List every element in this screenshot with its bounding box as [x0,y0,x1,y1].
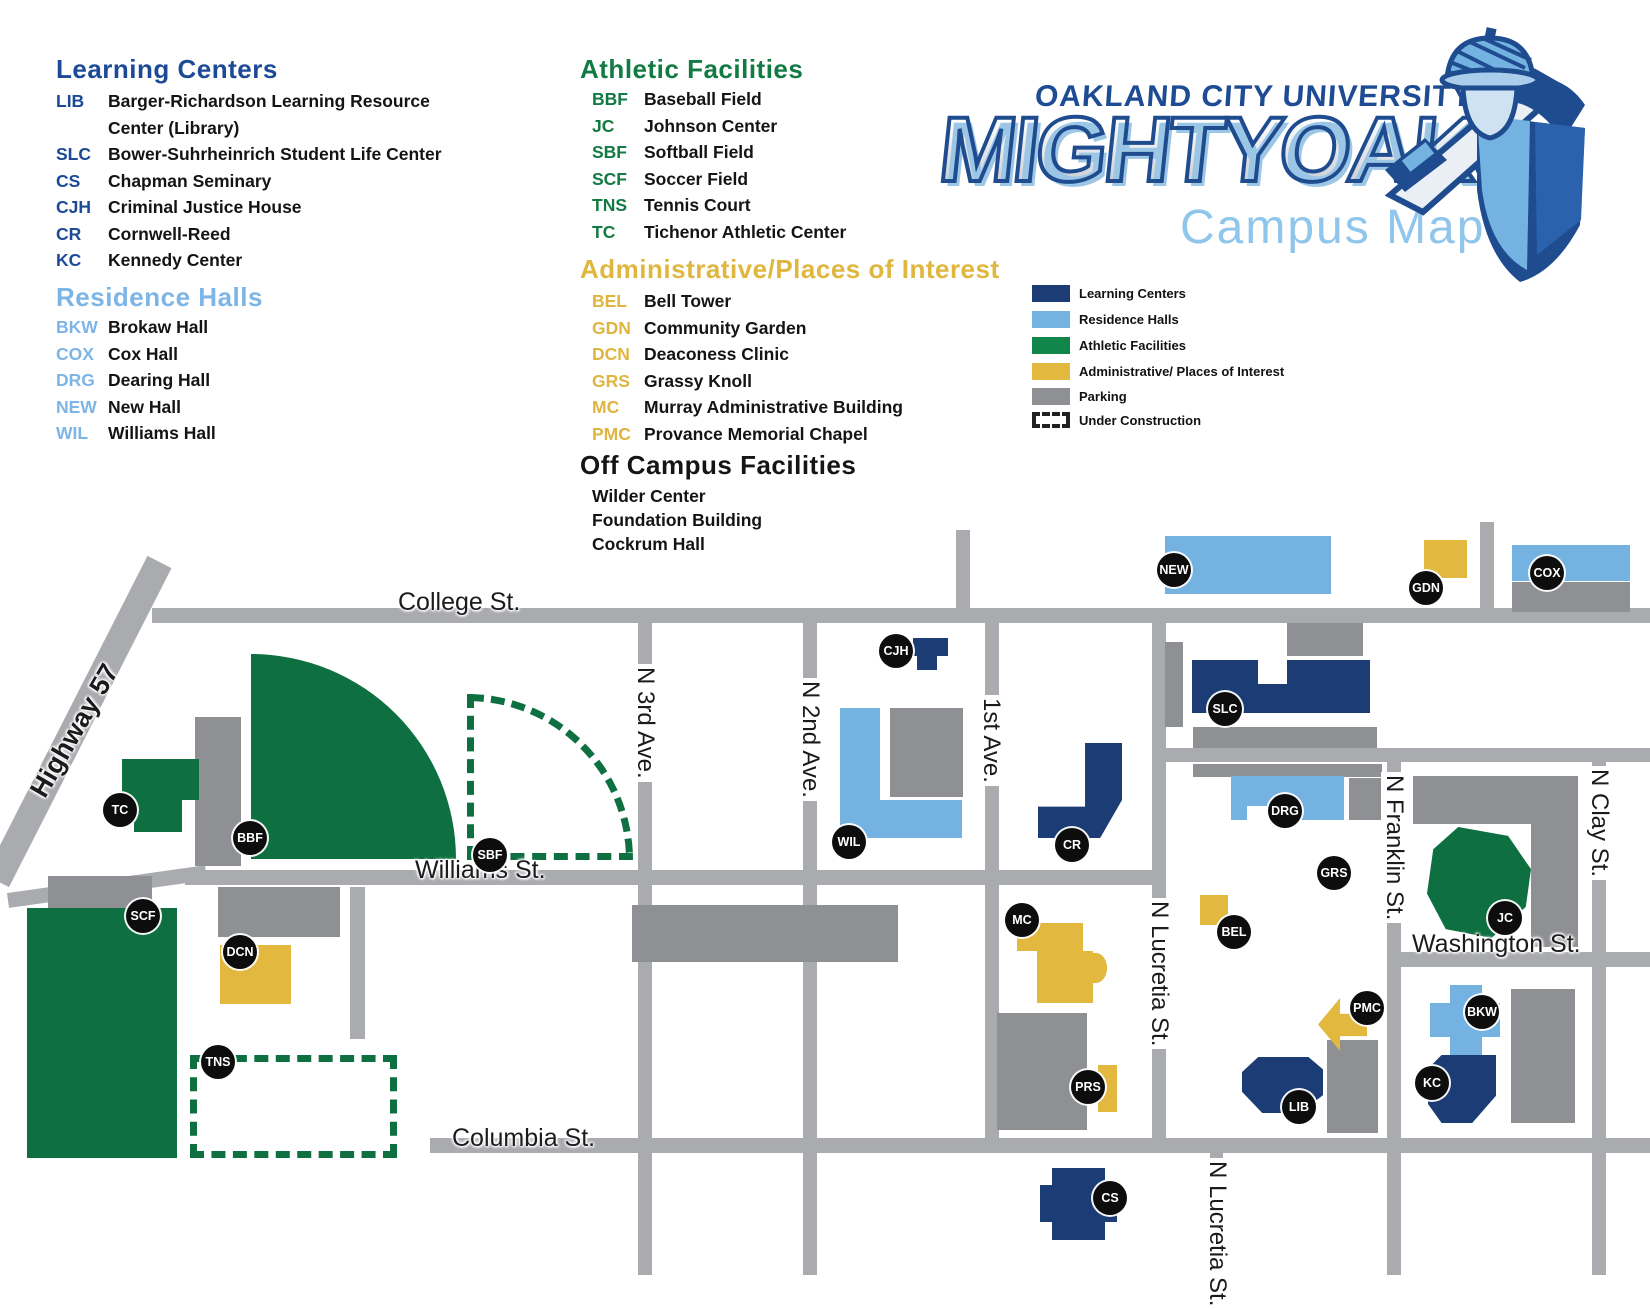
learning-swatch [1032,285,1070,302]
building-name: Tennis Court [644,192,922,219]
building-name: Bower-Suhrheinrich Student Life Center [108,141,456,168]
marker-gdn[interactable]: GDN [1409,571,1443,605]
list-item: SCFSoccer Field [592,166,922,193]
parking-lot [1327,1040,1378,1133]
marker-bbf[interactable]: BBF [233,821,267,855]
learning-centers-heading: Learning Centers [56,54,278,85]
list-item: TCTichenor Athletic Center [592,219,922,246]
list-item: TNSTennis Court [592,192,922,219]
marker-slc[interactable]: SLC [1208,692,1242,726]
street-label-n-franklin: N Franklin St. [1381,772,1407,923]
key-row: Learning Centers [1032,285,1186,302]
building-name: Johnson Center [644,113,922,140]
list-item: BELBell Tower [592,288,952,315]
building-code: SCF [592,166,644,193]
parking-lot [1193,727,1377,748]
list-item: Wilder Center [592,484,922,508]
residence-halls-list: BKWBrokaw Hall COXCox Hall DRGDearing Ha… [56,314,456,447]
list-item: JCJohnson Center [592,113,922,140]
building-mc-apse[interactable] [1085,953,1107,983]
building-name: Soccer Field [644,166,922,193]
building-code: CJH [56,194,108,221]
road-east-connector [1153,748,1650,762]
marker-tc[interactable]: TC [103,793,137,827]
street-label-n-lucretia-south: N Lucretia St. [1204,1158,1230,1309]
building-cr[interactable] [1038,743,1122,838]
under-construction-swatch [1032,412,1070,428]
building-tc[interactable] [122,759,199,800]
list-item: LIBBarger-Richardson Learning Resource C… [56,88,456,141]
marker-bel[interactable]: BEL [1217,915,1251,949]
building-name: Wilder Center [592,484,922,508]
building-name: Community Garden [644,315,952,342]
road-garden-stub [1480,522,1494,610]
list-item: SLCBower-Suhrheinrich Student Life Cente… [56,141,456,168]
list-item: GRSGrassy Knoll [592,368,952,395]
list-item: WILWilliams Hall [56,420,456,447]
key-row: Residence Halls [1032,311,1179,328]
building-cjh[interactable] [913,638,948,656]
building-name: Provance Memorial Chapel [644,421,952,448]
parking-lot [997,1013,1087,1130]
field-bbf-baseball[interactable] [251,654,456,859]
key-label: Learning Centers [1079,286,1186,301]
marker-mc[interactable]: MC [1005,903,1039,937]
list-item: BKWBrokaw Hall [56,314,456,341]
list-item: Cockrum Hall [592,532,922,556]
street-label-washington: Washington St. [1412,930,1581,959]
key-row: Athletic Facilities [1032,337,1186,354]
residence-swatch [1032,311,1070,328]
list-item: SBFSoftball Field [592,139,922,166]
field-scf-soccer[interactable] [27,908,177,1158]
list-item: DRGDearing Hall [56,367,456,394]
building-code: GRS [592,368,644,395]
road-college-st [152,608,1650,623]
building-name: Williams Hall [108,420,456,447]
parking-lot [1413,776,1578,824]
marker-dcn[interactable]: DCN [223,935,257,969]
marker-cox[interactable]: COX [1530,556,1564,590]
marker-sbf[interactable]: SBF [473,838,507,872]
building-code: NEW [56,394,108,421]
list-item: GDNCommunity Garden [592,315,952,342]
building-name: Deaconess Clinic [644,341,952,368]
building-code: JC [592,113,644,140]
key-row: Parking [1032,388,1127,405]
marker-scf[interactable]: SCF [126,899,160,933]
residence-halls-heading: Residence Halls [56,282,263,313]
building-code: SLC [56,141,108,168]
mascot-acorn-knight-icon [1385,20,1600,290]
building-name: Brokaw Hall [108,314,456,341]
building-cjh[interactable] [917,656,937,670]
street-label-n-3rd-ave: N 3rd Ave. [632,664,658,782]
key-label: Athletic Facilities [1079,338,1186,353]
list-item: COXCox Hall [56,341,456,368]
list-item: NEWNew Hall [56,394,456,421]
building-name: New Hall [108,394,456,421]
building-code: SBF [592,139,644,166]
marker-jc[interactable]: JC [1488,901,1522,935]
building-code: TC [592,219,644,246]
building-tc[interactable] [134,798,182,832]
building-code: PMC [592,421,644,448]
road-williams-st [185,870,1166,885]
parking-lot [1531,824,1578,947]
building-code: LIB [56,88,108,141]
marker-kc[interactable]: KC [1415,1066,1449,1100]
building-name: Cox Hall [108,341,456,368]
list-item: Foundation Building [592,508,922,532]
building-code: TNS [592,192,644,219]
list-item: DCNDeaconess Clinic [592,341,952,368]
building-name: Criminal Justice House [108,194,456,221]
key-label: Residence Halls [1079,312,1179,327]
marker-bkw[interactable]: BKW [1465,995,1499,1029]
building-code: COX [56,341,108,368]
athletic-swatch [1032,337,1070,354]
administrative-list: BELBell Tower GDNCommunity Garden DCNDea… [592,288,952,447]
road-1st-ave-north-stub [956,530,970,610]
building-code: GDN [592,315,644,342]
parking-lot [890,708,963,797]
marker-drg[interactable]: DRG [1268,794,1302,828]
building-name: Tichenor Athletic Center [644,219,922,246]
parking-lot [1512,582,1630,612]
building-name: Murray Administrative Building [644,394,952,421]
list-item: PMCProvance Memorial Chapel [592,421,952,448]
building-drg-notch [1247,806,1269,820]
street-label-columbia: Columbia St. [452,1124,595,1153]
marker-new[interactable]: NEW [1157,553,1191,587]
key-label: Under Construction [1079,413,1201,428]
athletic-facilities-list: BBFBaseball Field JCJohnson Center SBFSo… [592,86,922,245]
building-code: WIL [56,420,108,447]
marker-pmc[interactable]: PMC [1350,991,1384,1025]
building-code: MC [592,394,644,421]
building-name: Grassy Knoll [644,368,952,395]
marker-cs[interactable]: CS [1093,1181,1127,1215]
campus-map-page: Learning Centers LIBBarger-Richardson Le… [0,0,1650,1275]
list-item: BBFBaseball Field [592,86,922,113]
admin-swatch [1032,363,1070,380]
marker-cr[interactable]: CR [1055,828,1089,862]
street-label-college: College St. [398,588,520,617]
key-label: Administrative/ Places of Interest [1079,364,1284,379]
parking-swatch [1032,388,1070,405]
building-code: KC [56,247,108,274]
street-label-n-2nd-ave: N 2nd Ave. [797,678,823,801]
building-name: Foundation Building [592,508,922,532]
building-name: Kennedy Center [108,247,456,274]
building-code: DRG [56,367,108,394]
list-item: MCMurray Administrative Building [592,394,952,421]
marker-grs[interactable]: GRS [1317,856,1351,890]
university-logo: OAKLAND CITY UNIVERSITY MIGHTYOAKS Campu… [930,40,1620,275]
building-code: CR [56,221,108,248]
parking-lot [1165,642,1183,727]
street-label-1st-ave: 1st Ave. [978,695,1004,786]
parking-lot [218,887,340,937]
key-row: Under Construction [1032,412,1201,428]
building-code: DCN [592,341,644,368]
building-code: BBF [592,86,644,113]
marker-wil[interactable]: WIL [832,825,866,859]
building-name: Cornwell-Reed [108,221,456,248]
road-dcn-stub [350,887,365,1039]
building-slc-notch [1258,660,1287,684]
marker-lib[interactable]: LIB [1282,1090,1316,1124]
road-n-lucretia-st [1152,620,1166,1153]
building-name: Bell Tower [644,288,952,315]
key-row: Administrative/ Places of Interest [1032,363,1284,380]
learning-centers-list: LIBBarger-Richardson Learning Resource C… [56,88,456,274]
field-sbf-softball-under-construction[interactable] [467,694,633,860]
building-name: Dearing Hall [108,367,456,394]
parking-lot [1287,623,1363,656]
parking-lot [1511,989,1575,1123]
building-name: Cockrum Hall [592,532,922,556]
road-columbia-st [430,1138,1650,1153]
key-label: Parking [1079,389,1127,404]
list-item: CJHCriminal Justice House [56,194,456,221]
list-item: CRCornwell-Reed [56,221,456,248]
parking-lot [1349,778,1382,820]
street-label-n-lucretia: N Lucretia St. [1146,898,1172,1049]
list-item: KCKennedy Center [56,247,456,274]
building-code: BEL [592,288,644,315]
off-campus-heading: Off Campus Facilities [580,450,856,481]
marker-tns[interactable]: TNS [201,1045,235,1079]
building-name: Baseball Field [644,86,922,113]
parking-lot [632,905,898,962]
building-code: CS [56,168,108,195]
building-name: Chapman Seminary [108,168,456,195]
marker-prs[interactable]: PRS [1071,1070,1105,1104]
athletic-facilities-heading: Athletic Facilities [580,54,803,85]
building-name: Softball Field [644,139,922,166]
marker-cjh[interactable]: CJH [879,634,913,668]
building-name: Barger-Richardson Learning Resource Cent… [108,88,438,141]
street-label-n-clay: N Clay St. [1586,766,1612,880]
off-campus-list: Wilder Center Foundation Building Cockru… [592,484,922,556]
list-item: CSChapman Seminary [56,168,456,195]
building-code: BKW [56,314,108,341]
